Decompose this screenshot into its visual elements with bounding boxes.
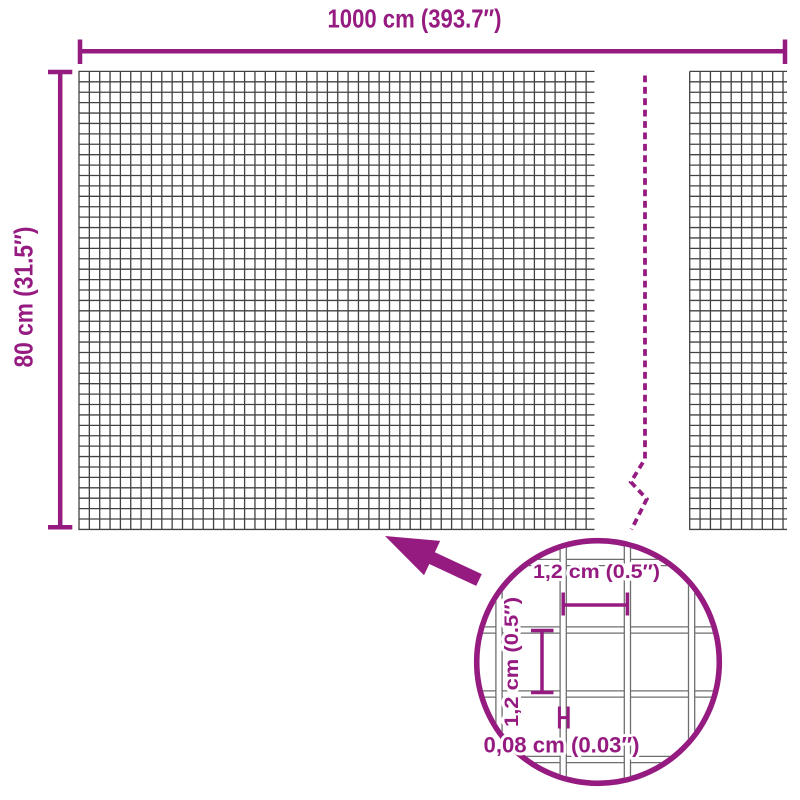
svg-text:1,2 cm (0.5″): 1,2 cm (0.5″) xyxy=(501,597,523,727)
svg-text:0,08 cm (0.03″): 0,08 cm (0.03″) xyxy=(484,733,640,758)
svg-text:80 cm (31.5″): 80 cm (31.5″) xyxy=(9,227,39,368)
svg-text:1,2 cm (0.5″): 1,2 cm (0.5″) xyxy=(533,562,660,583)
svg-text:1000 cm (393.7″): 1000 cm (393.7″) xyxy=(328,4,502,34)
